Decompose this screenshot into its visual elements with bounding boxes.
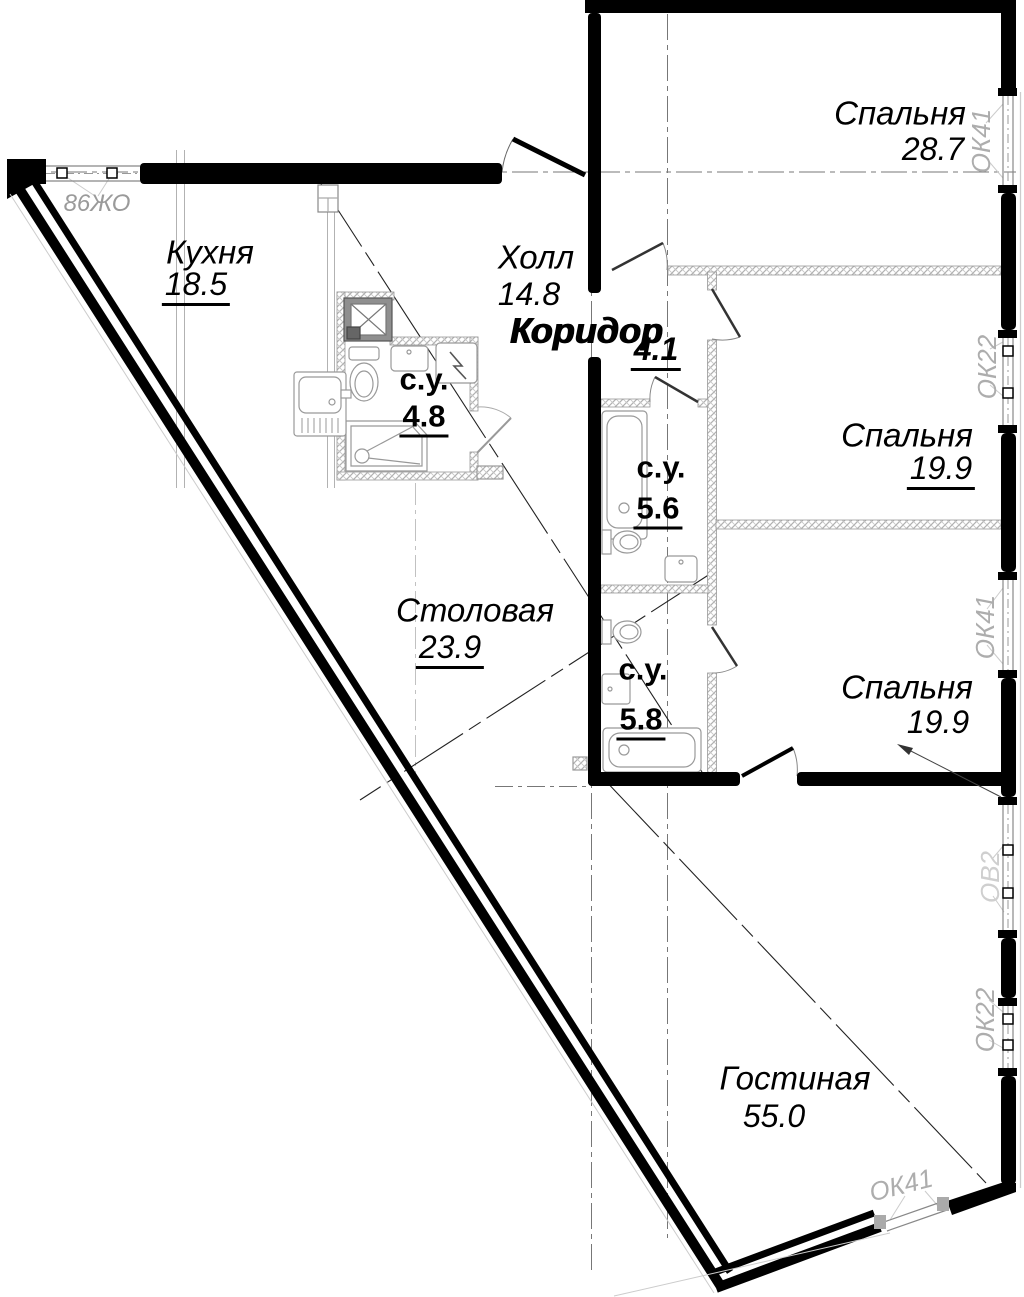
room-area-living: 55.0 [743,1100,805,1132]
room-area-bedroom-top: 28.7 [902,133,964,165]
room-area-bedroom-bottom: 19.9 [907,706,969,738]
door-bathroom-58 [712,627,737,673]
toilet-icon [349,347,379,401]
room-area-hall: 14.8 [498,278,560,310]
room-label-bedroom-top: Спальня [834,97,966,130]
arrow-annotation [897,744,1001,797]
door-bathroom-48 [477,407,511,453]
room-label-bathroom-48: с.у. [400,364,449,395]
room-label-bedroom-bottom: Спальня [841,671,973,704]
window-tag-ok22-b: ОК22 [972,988,998,1052]
room-area-bathroom-48: 4.8 [399,401,448,438]
room-area-dining: 23.9 [416,631,484,669]
room-area-bathroom-56: 5.6 [633,493,682,530]
door-bedroom-top [612,243,667,270]
wall-panel-icon [318,185,338,212]
kitchen-sink-icon [294,372,351,436]
window-tag-top-left: 86ЖО [64,192,131,216]
room-label-bathroom-58: с.у. [619,654,668,685]
window-tag-ok41-mid: ОК41 [972,595,998,659]
radiator-icon [573,757,587,770]
door-bathroom-56 [650,377,698,402]
room-area-kitchen: 18.5 [162,268,230,306]
window-top-left [46,166,140,181]
toilet-icon [602,620,641,644]
room-label-dining: Столовая [396,594,554,627]
room-area-corridor: 4.1 [631,333,681,371]
room-label-living: Гостиная [720,1062,871,1095]
door-bedroom-middle [712,289,740,340]
door-bedroom-bottom [742,748,797,776]
room-label-kitchen: Кухня [166,236,254,269]
window-tag-ok41-top: ОК41 [968,109,994,173]
window-tag-ov2: ОВ2 [977,851,1003,903]
window-tag-ok22-a: ОК22 [974,335,1000,399]
toilet-icon [602,530,641,554]
room-area-bathroom-58: 5.8 [616,704,665,741]
room-label-hall: Холл [498,241,574,274]
room-label-bedroom-middle: Спальня [841,419,973,452]
room-area-bedroom-middle: 19.9 [907,452,975,490]
radiator-icon [477,466,503,479]
floor-plan: Спальня 28.7 Кухня 18.5 Холл 14.8 Коридо… [0,0,1024,1297]
floor-plan-drawing [0,0,1024,1297]
room-label-bathroom-56: с.у. [637,452,686,483]
vent-shaft [344,298,392,341]
entrance-door [502,139,585,175]
sink-icon [665,556,697,582]
